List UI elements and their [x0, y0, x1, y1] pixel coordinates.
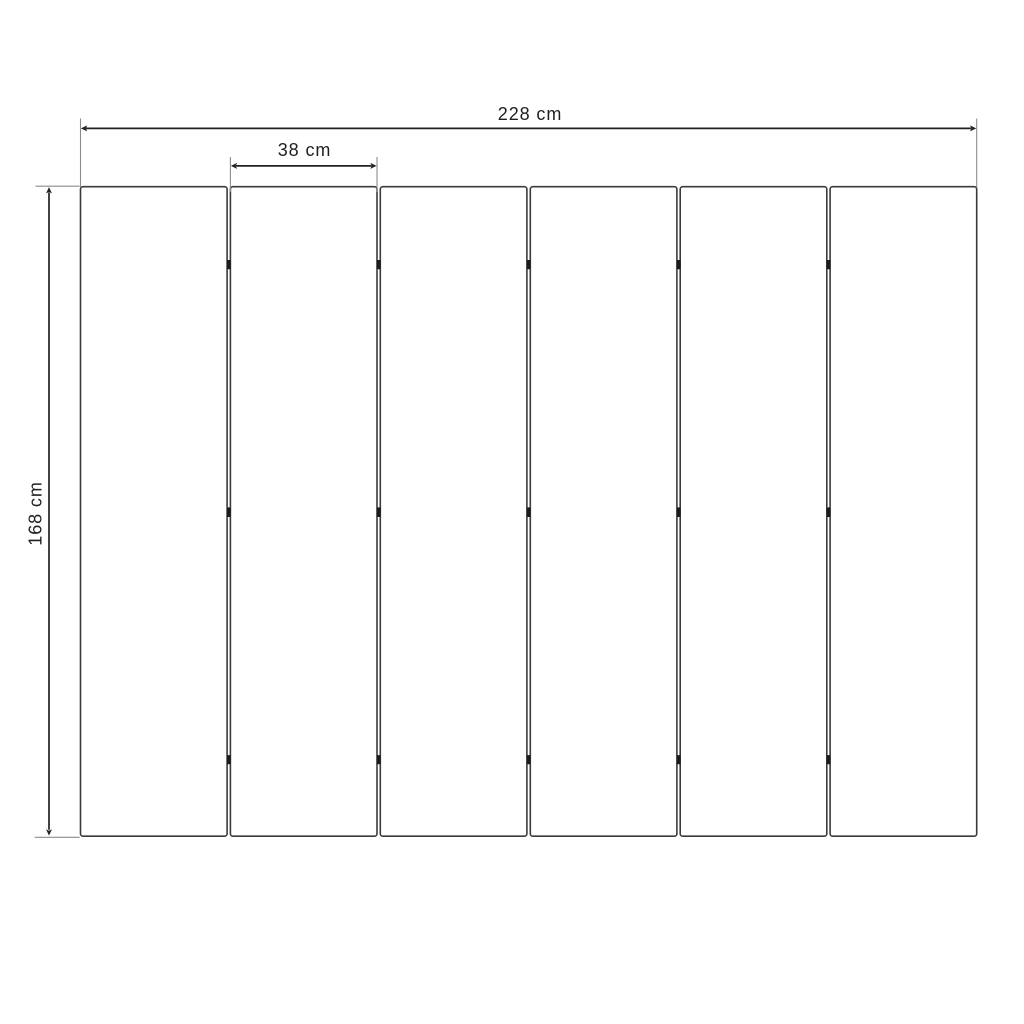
svg-text:38 cm: 38 cm	[278, 140, 332, 160]
svg-text:228 cm: 228 cm	[498, 104, 562, 124]
svg-text:168 cm: 168 cm	[26, 481, 46, 545]
